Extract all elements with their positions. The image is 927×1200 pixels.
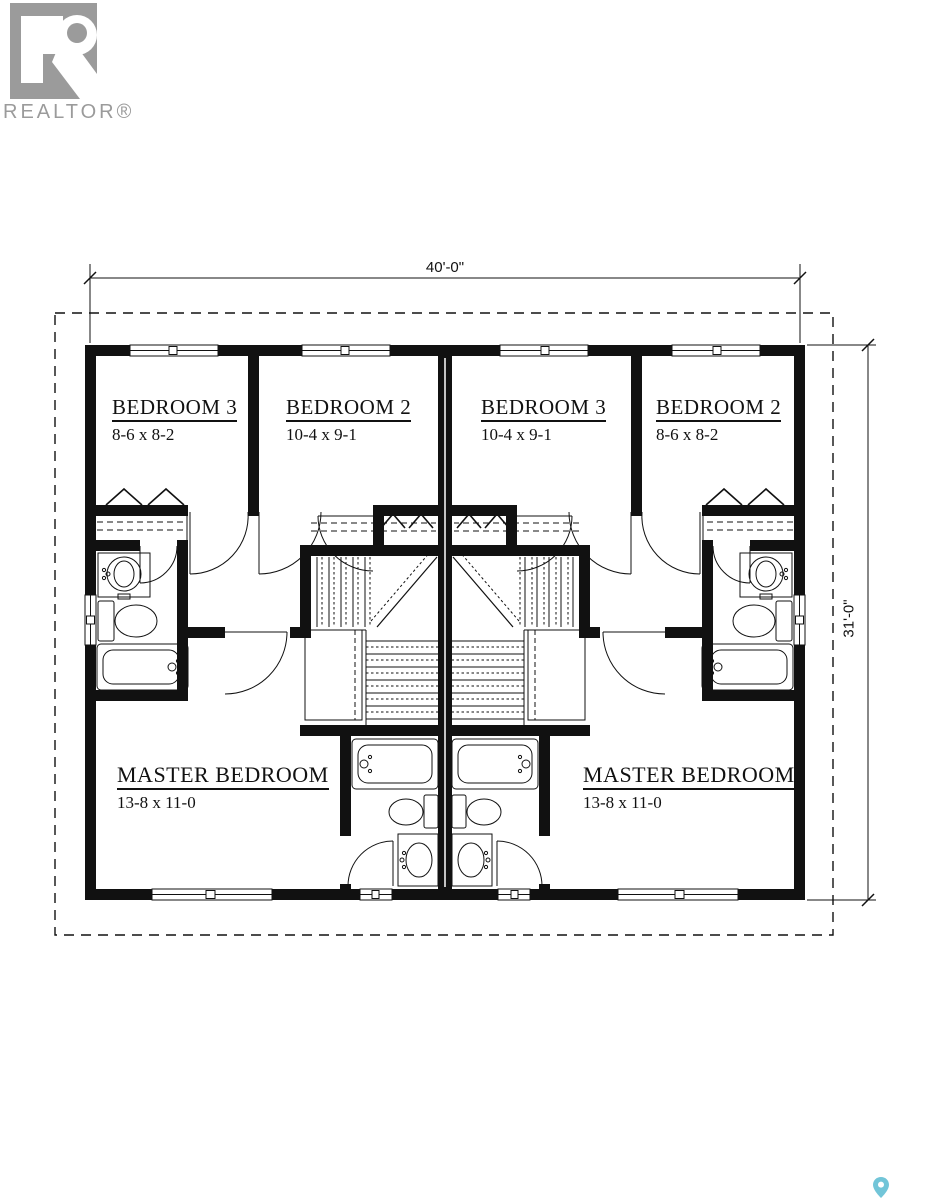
- window: [302, 345, 390, 356]
- bathroom-fixtures: [352, 739, 438, 886]
- party-wall: [438, 345, 452, 900]
- sink-icon: [107, 557, 141, 591]
- bathroom-fixtures: [97, 553, 188, 690]
- map-pin-icon: [869, 1174, 893, 1200]
- toilet-tank: [98, 601, 114, 641]
- room-name: BEDROOM 3: [112, 396, 237, 422]
- height-dimension-label: 31'-0": [841, 576, 858, 662]
- width-dimension-label: 40'-0": [395, 259, 495, 276]
- sink-icon: [406, 843, 432, 877]
- room-name: MASTER BEDROOM: [117, 763, 329, 790]
- room-label-bedroom3-right: BEDROOM 3 10-4 x 9-1: [481, 396, 606, 444]
- toilet-icon: [115, 605, 157, 637]
- room-name: MASTER BEDROOM: [583, 763, 795, 790]
- bathtub-icon: [352, 739, 438, 789]
- room-label-bedroom2-left: BEDROOM 2 10-4 x 9-1: [286, 396, 411, 444]
- room-label-master-left: MASTER BEDROOM 13-8 x 11-0: [117, 763, 329, 812]
- room-name: BEDROOM 3: [481, 396, 606, 422]
- room-size: 13-8 x 11-0: [583, 794, 795, 812]
- bathtub-icon: [97, 644, 188, 690]
- window: [85, 595, 96, 645]
- toilet-tank: [424, 795, 438, 828]
- room-label-bedroom2-right: BEDROOM 2 8-6 x 8-2: [656, 396, 781, 444]
- window: [152, 889, 272, 900]
- window: [130, 345, 218, 356]
- toilet-icon: [389, 799, 423, 825]
- room-name: BEDROOM 2: [656, 396, 781, 422]
- room-size: 8-6 x 8-2: [656, 426, 781, 444]
- floorplan-drawing: [0, 0, 927, 1200]
- room-label-bedroom3-left: BEDROOM 3 8-6 x 8-2: [112, 396, 237, 444]
- room-size: 8-6 x 8-2: [112, 426, 237, 444]
- room-size: 10-4 x 9-1: [286, 426, 411, 444]
- room-size: 13-8 x 11-0: [117, 794, 329, 812]
- floorplan-page: REALTOR®: [0, 0, 927, 1200]
- room-size: 10-4 x 9-1: [481, 426, 606, 444]
- room-name: BEDROOM 2: [286, 396, 411, 422]
- room-label-master-right: MASTER BEDROOM 13-8 x 11-0: [583, 763, 795, 812]
- staircase: [305, 551, 438, 725]
- window: [360, 889, 392, 900]
